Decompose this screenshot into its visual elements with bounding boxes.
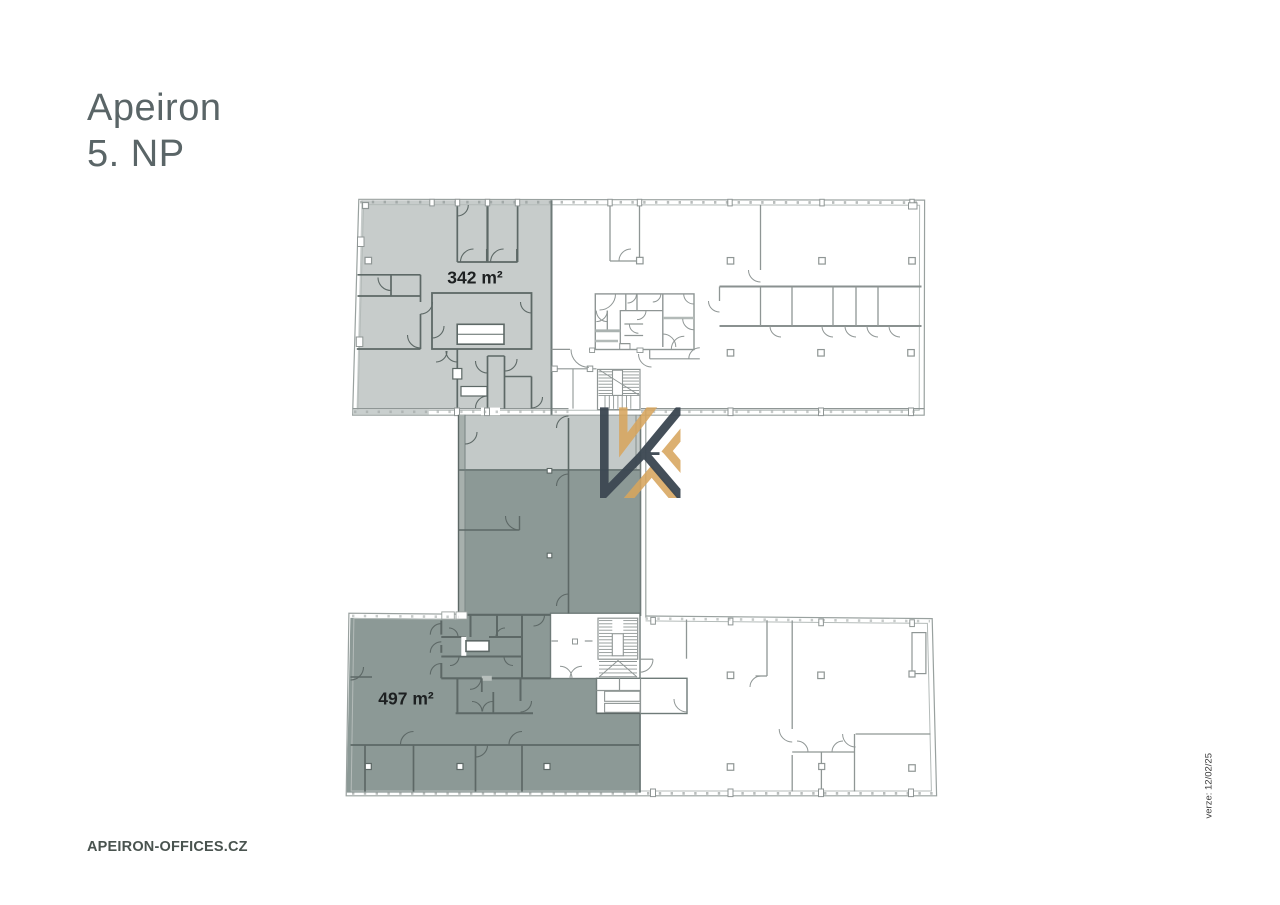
svg-text:verze: 12/02/25: verze: 12/02/25 — [1204, 753, 1215, 819]
svg-text:342 m²: 342 m² — [447, 268, 503, 288]
svg-text:497 m²: 497 m² — [378, 689, 434, 709]
